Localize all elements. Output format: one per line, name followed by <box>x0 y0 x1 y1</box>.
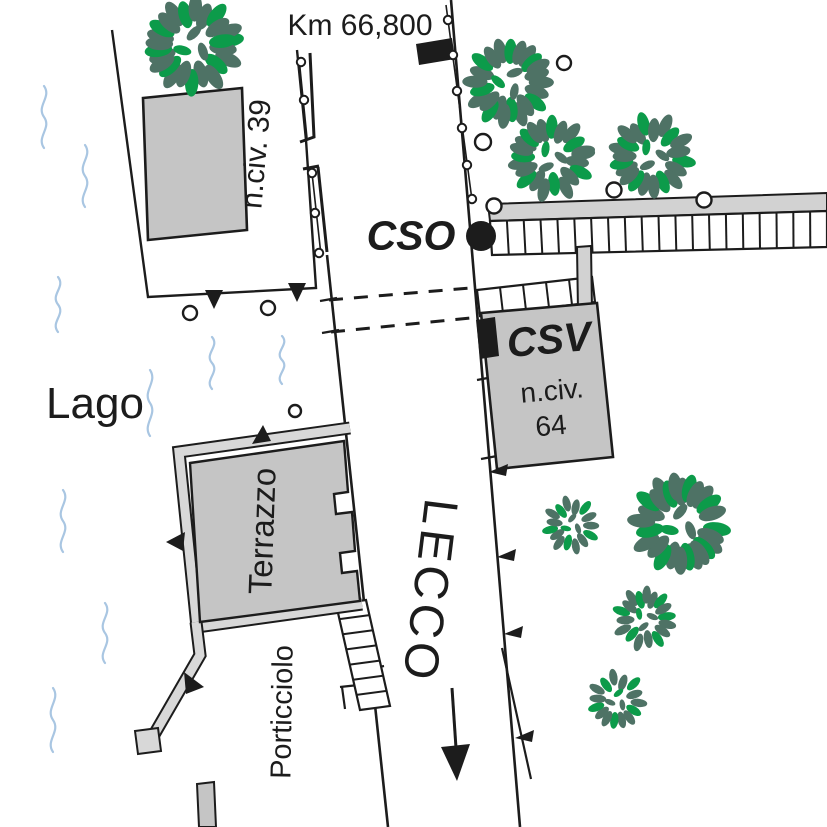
water-wave <box>280 336 285 384</box>
water-wave <box>56 277 61 332</box>
fence-post <box>458 124 466 132</box>
terrace-stairs-ladder <box>336 600 390 710</box>
label-cso: CSO <box>367 216 456 257</box>
road-right-fence-line <box>446 5 472 200</box>
bollard <box>607 183 622 198</box>
parcel-39-gate-mark <box>205 290 223 309</box>
water-wave <box>51 688 56 752</box>
tree <box>144 0 245 97</box>
crossing-dashes <box>329 288 470 332</box>
water-wave <box>83 145 88 207</box>
water-wave <box>103 603 108 663</box>
fence-post <box>308 169 316 177</box>
tree <box>611 585 677 652</box>
boardwalk-post <box>577 246 592 311</box>
quay-block <box>197 782 216 827</box>
lecco-direction-arrow <box>441 688 470 781</box>
water-wave <box>42 86 47 148</box>
label-lago: Lago <box>46 382 144 426</box>
fence-post <box>300 96 308 104</box>
left-guardrail <box>299 53 327 255</box>
fence-post <box>453 87 461 95</box>
bollard <box>475 134 491 150</box>
tree <box>541 495 599 555</box>
parcel-39-gate-mark <box>288 283 306 302</box>
roadside-delineators <box>489 464 534 742</box>
pier-foot <box>135 728 161 754</box>
cso-survey-point <box>466 221 496 251</box>
fence-post <box>315 249 323 257</box>
csv-marker <box>476 317 499 359</box>
tree <box>627 472 732 575</box>
bollard <box>183 306 197 320</box>
label-nciv-64-line2: 64 <box>534 411 567 442</box>
delineator-flag <box>504 626 523 638</box>
water-wave <box>61 490 66 552</box>
fence-post <box>297 58 305 66</box>
delineator-flag <box>515 730 534 742</box>
bollard <box>557 56 571 70</box>
fence-post <box>449 51 457 59</box>
tree <box>462 37 554 129</box>
label-km-66800: Km 66,800 <box>287 11 432 41</box>
road-right-secondary-line <box>502 648 531 779</box>
label-terrazzo: Terrazzo <box>243 467 280 595</box>
fence-post <box>444 16 452 24</box>
delineator-flag <box>497 549 516 561</box>
fence-post <box>311 209 319 217</box>
bollard <box>697 193 712 208</box>
fence-post <box>463 161 471 169</box>
tree <box>507 115 596 204</box>
tree <box>587 668 648 729</box>
label-porticciolo: Porticciolo <box>267 645 298 779</box>
km-marker <box>416 38 455 65</box>
label-csv: CSV <box>505 316 593 364</box>
water-wave <box>148 370 153 436</box>
water-wave <box>210 337 215 389</box>
label-nciv-64-line1: n.civ. <box>519 374 584 407</box>
bollard <box>487 199 502 214</box>
building-39 <box>143 88 247 240</box>
site-plan-map: Km 66,800 Lago CSO CSV n.civ. 39 n.civ. … <box>0 0 827 827</box>
bollard <box>289 405 301 417</box>
fence-post <box>468 195 476 203</box>
bollard <box>261 301 275 315</box>
